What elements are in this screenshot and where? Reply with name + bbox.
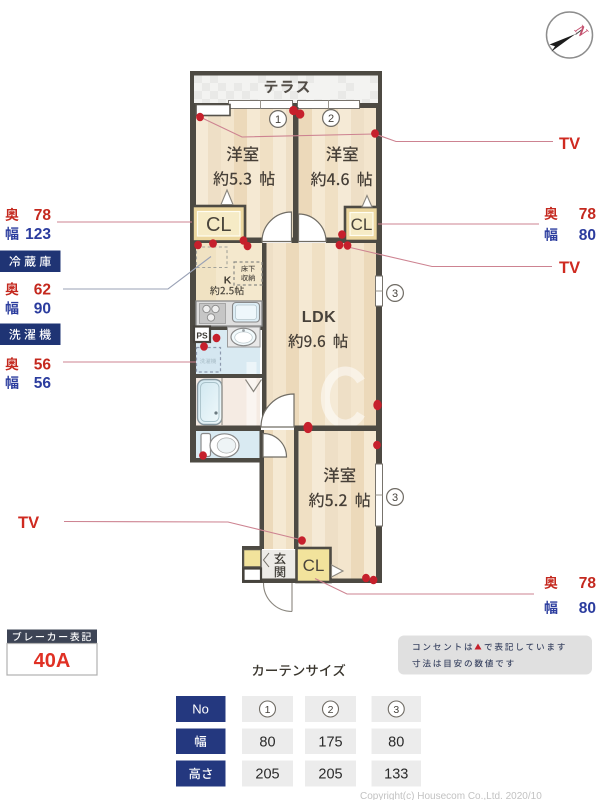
svg-text:TV: TV xyxy=(18,514,39,532)
svg-text:78: 78 xyxy=(34,207,52,224)
svg-text:80: 80 xyxy=(579,227,596,244)
svg-text:No: No xyxy=(192,702,209,717)
svg-text:PS: PS xyxy=(196,331,208,341)
svg-text:CL: CL xyxy=(206,214,232,236)
svg-text:123: 123 xyxy=(25,226,51,243)
svg-text:CL: CL xyxy=(351,215,373,234)
svg-text:Copyright(c) Housecom Co.,L: Copyright(c) Housecom Co.,Ltd. 2020/10 xyxy=(360,791,542,800)
svg-text:80: 80 xyxy=(388,734,404,750)
svg-text:2: 2 xyxy=(328,704,334,716)
svg-text:1: 1 xyxy=(265,704,271,716)
svg-text:2: 2 xyxy=(328,113,334,125)
svg-text:3: 3 xyxy=(392,288,398,300)
svg-text:175: 175 xyxy=(318,734,342,750)
svg-text:TV: TV xyxy=(559,259,580,277)
svg-text:TV: TV xyxy=(559,135,580,153)
svg-text:56: 56 xyxy=(34,375,52,392)
svg-text:80: 80 xyxy=(259,734,275,750)
svg-text:78: 78 xyxy=(579,575,597,592)
svg-text:1: 1 xyxy=(275,114,281,126)
svg-text:90: 90 xyxy=(34,301,51,318)
svg-text:80: 80 xyxy=(579,600,596,617)
svg-text:LDK: LDK xyxy=(302,309,336,326)
svg-text:62: 62 xyxy=(34,282,51,299)
svg-text:56: 56 xyxy=(34,357,52,374)
svg-text:78: 78 xyxy=(579,206,597,223)
svg-text:3: 3 xyxy=(392,492,398,504)
svg-text:205: 205 xyxy=(318,767,342,783)
svg-text:133: 133 xyxy=(384,767,408,783)
svg-text:205: 205 xyxy=(255,767,279,783)
svg-text:40A: 40A xyxy=(34,650,71,672)
svg-text:3: 3 xyxy=(393,704,399,716)
svg-text:K: K xyxy=(224,275,232,287)
svg-text:CL: CL xyxy=(303,556,325,575)
